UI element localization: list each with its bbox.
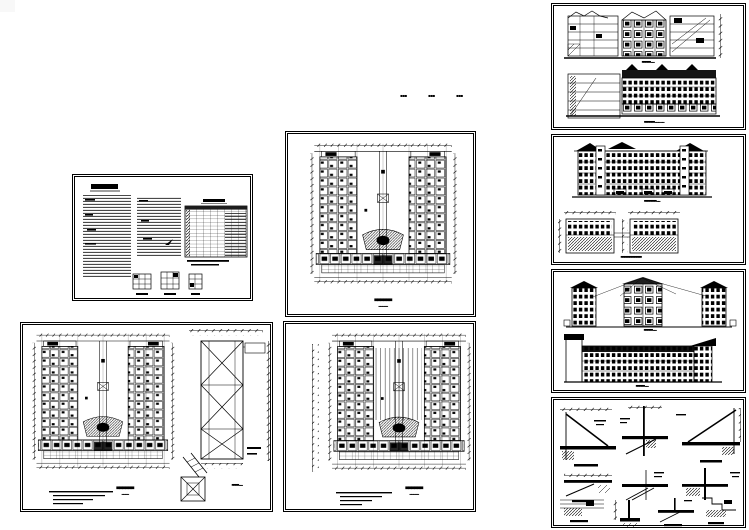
sheet-border: ▄▄▄▄▄▄▄ ▂▂ ▄▄▄▄▄▄▄▄▄▄▄▄	[553, 136, 744, 263]
sheet-border: ▄▄▄▄▄▄ ▂▂▂ ▂▂	[287, 133, 474, 315]
floor-plan-drawing	[288, 326, 475, 511]
detail-figure	[622, 470, 668, 500]
detail-figure	[560, 500, 604, 522]
elevation-drawing	[556, 8, 745, 129]
schedule-table	[185, 199, 247, 266]
sheet-border: ▄▄▄▄▄▄ ▂▂▂▂ ▄▄▄▄ ▂▂	[22, 324, 271, 510]
elevation-title-bottom: ▄▄▄▄▄▄ ▂▂▂ ▂▂	[624, 120, 684, 123]
plan-scale: ▂▂▂ ▂▂	[396, 492, 432, 495]
sheet-design-notes[interactable]	[72, 174, 253, 301]
detail-title: ▄▄▄▄ ▂▂	[215, 483, 259, 486]
plan-scale: ▂▂▂ ▂▂	[362, 304, 404, 307]
annotation-mark: ▪▪▪	[400, 94, 407, 98]
window-detail-figures	[133, 272, 202, 295]
elevation-top	[572, 142, 712, 197]
annotation-mark: ▪▪▪	[456, 94, 463, 98]
end-towers-elevation-top	[564, 277, 736, 327]
detail-figure	[560, 406, 616, 467]
sheet-floor-plan-1[interactable]: ▄▄▄▄▄▄ ▂▂▂ ▂▂	[285, 131, 476, 317]
detail-figure	[676, 408, 741, 463]
design-notes-drawing	[77, 179, 252, 300]
detail-figure	[682, 468, 740, 500]
sheet-construction-details[interactable]	[551, 397, 746, 528]
annotation-mark: ▪▪▪	[428, 94, 435, 98]
partial-plans-bottom	[558, 211, 680, 253]
stair-tower-detail	[181, 329, 271, 501]
elevations-drawing	[556, 274, 745, 392]
long-elevation-bottom	[566, 64, 720, 118]
section-elevation-top	[564, 11, 724, 58]
detail-figure	[702, 498, 736, 524]
sheet-elevation-3[interactable]: ▄▄▄▄▄ ▂▂ ▄▄▄▄▄ ▂▂	[551, 269, 746, 393]
plan-title: ▄▄▄▄▄▄	[99, 486, 151, 490]
plan-title: ▄▄▄▄▄▄	[356, 298, 410, 302]
note-lines	[336, 492, 392, 505]
detail-figure	[612, 500, 640, 527]
courtyard-grid	[374, 348, 422, 420]
sheet-border	[553, 399, 744, 526]
cad-drawing-collage: { "canvas": { "width": 749, "height": 53…	[0, 0, 749, 530]
note-lines	[49, 491, 113, 504]
detail-figure	[658, 498, 694, 526]
sheet-border	[74, 176, 251, 299]
elevation-title-bottom: ▄▄▄▄▄ ▂▂	[616, 384, 668, 387]
sheet-floor-plan-2[interactable]: ▄▄▄▄▄▄ ▂▂▂▂ ▄▄▄▄ ▂▂	[20, 322, 273, 512]
sheet-floor-plan-3[interactable]: ▄▄▄▄▄▄ ▂▂▂ ▂▂	[283, 321, 476, 512]
notes-title	[90, 184, 120, 191]
sheet-border: ▄▄▄▄▄ ▂▂ ▄▄▄▄▄▄ ▂▂▂ ▂▂	[553, 5, 744, 128]
detail-figure	[620, 404, 668, 456]
notes-text-columns	[83, 195, 181, 278]
elevation-title-top: ▄▄▄▄▄ ▂▂	[622, 60, 674, 63]
details-drawing	[556, 402, 745, 527]
partial-plans-title: ▄▄▄▄▄▄▄▄▄▄▄▄	[596, 255, 666, 258]
u-plan	[31, 332, 175, 471]
detail-figure	[564, 472, 612, 502]
sheet-elevation-1[interactable]: ▄▄▄▄▄ ▂▂ ▄▄▄▄▄▄ ▂▂▂ ▂▂	[551, 3, 746, 130]
sheet-border: ▄▄▄▄▄ ▂▂ ▄▄▄▄▄ ▂▂	[553, 271, 744, 391]
u-plan	[309, 142, 458, 286]
elevation-title-top: ▄▄▄▄▄ ▂▂	[624, 328, 676, 331]
corner-artifact	[0, 0, 15, 12]
left-dimension-band	[312, 344, 319, 472]
plan-title: ▄▄▄▄▄▄	[388, 486, 440, 490]
sheet-elevation-2[interactable]: ▄▄▄▄▄▄▄ ▂▂ ▄▄▄▄▄▄▄▄▄▄▄▄	[551, 134, 746, 265]
long-elevation-bottom	[564, 334, 722, 382]
plan-scale: ▂▂▂▂	[107, 492, 143, 495]
floor-plan-drawing	[290, 136, 475, 316]
elevation-title: ▄▄▄▄▄▄▄ ▂▂	[624, 199, 680, 202]
sheet-border: ▄▄▄▄▄▄ ▂▂▂ ▂▂	[285, 323, 474, 510]
